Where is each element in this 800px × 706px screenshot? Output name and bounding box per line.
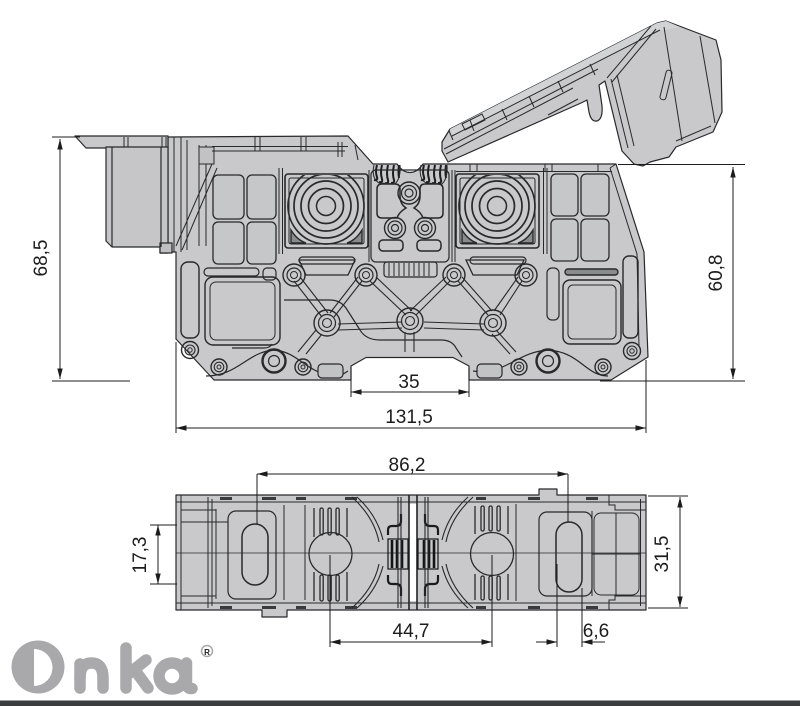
svg-text:35: 35 xyxy=(398,372,419,393)
svg-text:44,7: 44,7 xyxy=(393,621,430,642)
svg-text:86,2: 86,2 xyxy=(389,455,426,476)
svg-text:6,6: 6,6 xyxy=(583,621,609,642)
svg-text:31,5: 31,5 xyxy=(652,536,673,573)
svg-text:60,8: 60,8 xyxy=(706,255,727,292)
svg-text:68,5: 68,5 xyxy=(31,240,52,277)
svg-text:R: R xyxy=(204,648,210,657)
svg-text:17,3: 17,3 xyxy=(130,537,151,574)
svg-text:131,5: 131,5 xyxy=(385,407,433,428)
